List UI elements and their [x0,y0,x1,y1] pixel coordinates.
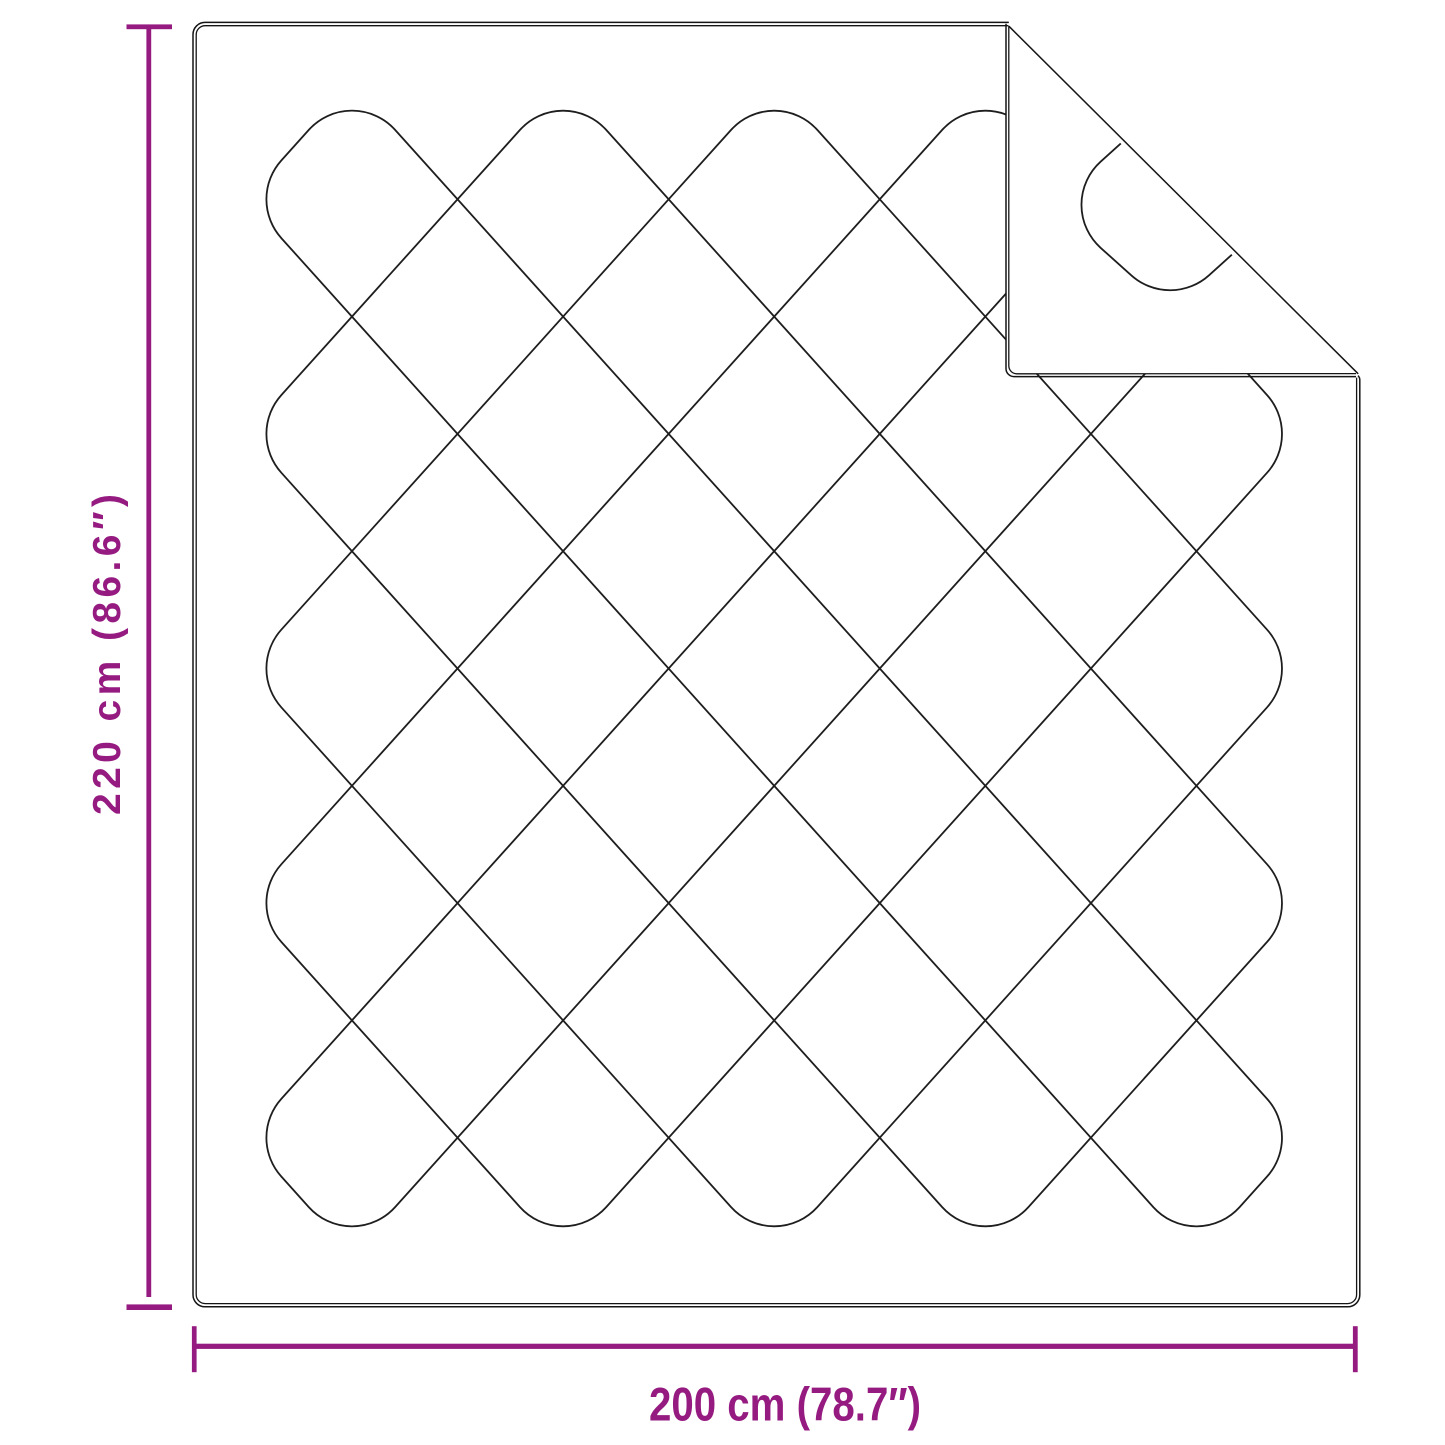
svg-text:200 cm (78.7″): 200 cm (78.7″) [649,1377,921,1430]
